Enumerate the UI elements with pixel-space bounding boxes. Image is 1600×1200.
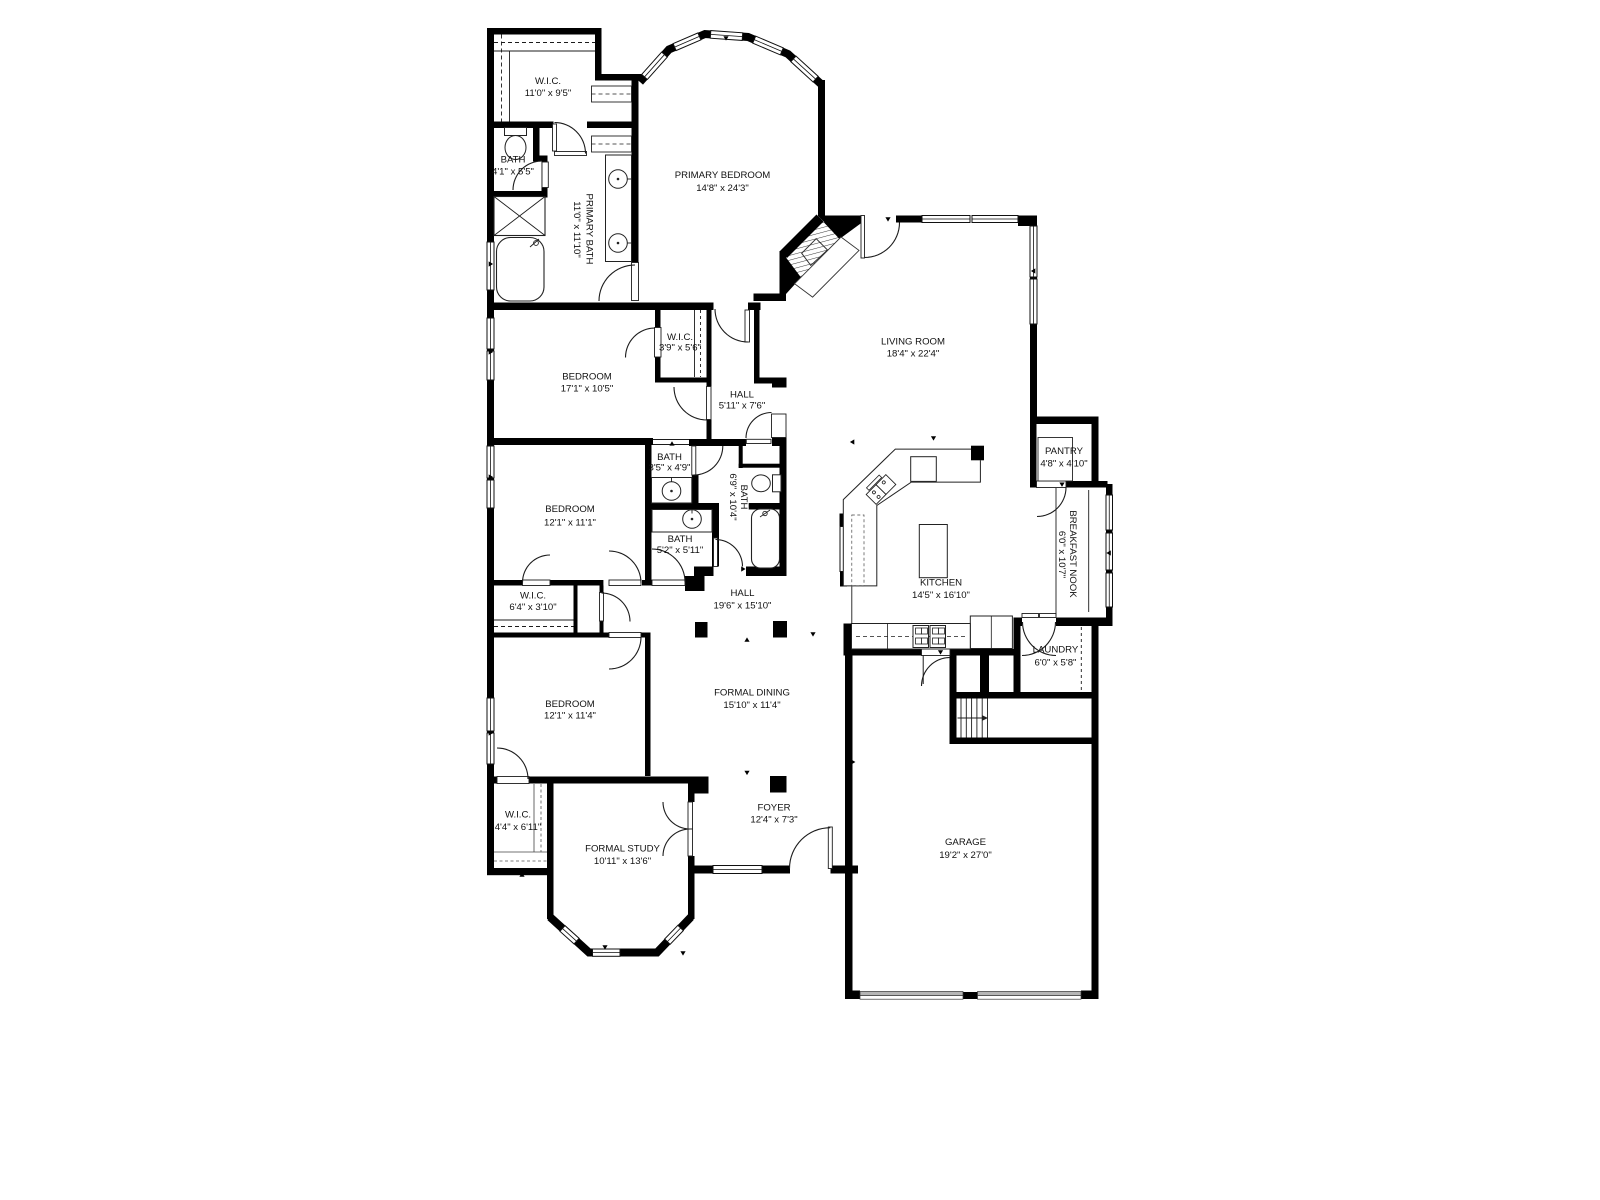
svg-text:6'4" x 3'10": 6'4" x 3'10" [509,602,556,613]
svg-text:4'4" x 6'11": 4'4" x 6'11" [495,822,542,833]
svg-text:4'1" x 5'5": 4'1" x 5'5" [492,167,534,178]
svg-text:15'10" x 11'4": 15'10" x 11'4" [723,700,780,711]
svg-text:19'6" x 15'10": 19'6" x 15'10" [714,601,772,612]
svg-text:12'4" x 7'3": 12'4" x 7'3" [750,815,797,826]
svg-text:W.I.C.: W.I.C. [505,810,531,821]
svg-text:5'2" x 5'11": 5'2" x 5'11" [657,545,704,556]
svg-text:6'0" x 5'8": 6'0" x 5'8" [1035,658,1077,669]
svg-text:5'11" x 7'6": 5'11" x 7'6" [719,401,766,412]
svg-text:17'1" x 10'5": 17'1" x 10'5" [561,384,614,395]
svg-text:LIVING ROOM: LIVING ROOM [881,337,945,348]
svg-text:BATH: BATH [501,155,526,166]
svg-text:HALL: HALL [731,588,756,599]
svg-text:FORMAL DINING: FORMAL DINING [714,688,790,699]
svg-text:LAUNDRY: LAUNDRY [1033,645,1079,656]
svg-text:12'1" x 11'1": 12'1" x 11'1" [544,518,596,529]
svg-text:18'4" x 22'4": 18'4" x 22'4" [887,349,940,360]
svg-text:BEDROOM: BEDROOM [562,372,612,383]
svg-text:11'0" x 11'10": 11'0" x 11'10" [571,201,582,258]
svg-text:14'8" x 24'3": 14'8" x 24'3" [696,183,749,194]
svg-text:BREAKFAST NOOK: BREAKFAST NOOK [1067,510,1078,598]
svg-text:4'8" x 4'10": 4'8" x 4'10" [1040,459,1087,470]
svg-text:BATH: BATH [668,534,693,545]
svg-text:KITCHEN: KITCHEN [920,578,962,589]
svg-text:BATH: BATH [657,452,682,463]
svg-text:HALL: HALL [730,390,755,401]
svg-text:BATH: BATH [738,485,749,510]
svg-text:W.I.C.: W.I.C. [520,591,546,602]
svg-text:11'0" x 9'5": 11'0" x 9'5" [525,88,572,99]
svg-text:GARAGE: GARAGE [945,837,986,848]
svg-text:BEDROOM: BEDROOM [545,699,595,710]
svg-text:FOYER: FOYER [757,803,790,814]
svg-text:BEDROOM: BEDROOM [545,504,595,515]
svg-text:FORMAL STUDY: FORMAL STUDY [585,844,660,855]
svg-text:14'5" x 16'10": 14'5" x 16'10" [912,590,970,601]
svg-text:3'9" x 5'6": 3'9" x 5'6" [659,343,701,354]
svg-text:3'5" x 4'9": 3'5" x 4'9" [649,463,691,474]
svg-text:PANTRY: PANTRY [1045,446,1084,457]
svg-text:PRIMARY BATH: PRIMARY BATH [584,194,595,265]
svg-text:12'1" x 11'4": 12'1" x 11'4" [544,711,596,722]
svg-text:PRIMARY BEDROOM: PRIMARY BEDROOM [675,170,771,181]
svg-text:W.I.C.: W.I.C. [535,76,561,87]
svg-text:6'9" x 10'4": 6'9" x 10'4" [727,473,738,520]
svg-text:10'11" x 13'6": 10'11" x 13'6" [594,856,651,867]
svg-text:W.I.C.: W.I.C. [667,332,693,343]
svg-text:6'0" x 10'7": 6'0" x 10'7" [1056,531,1067,578]
svg-text:19'2" x 27'0": 19'2" x 27'0" [939,850,992,861]
